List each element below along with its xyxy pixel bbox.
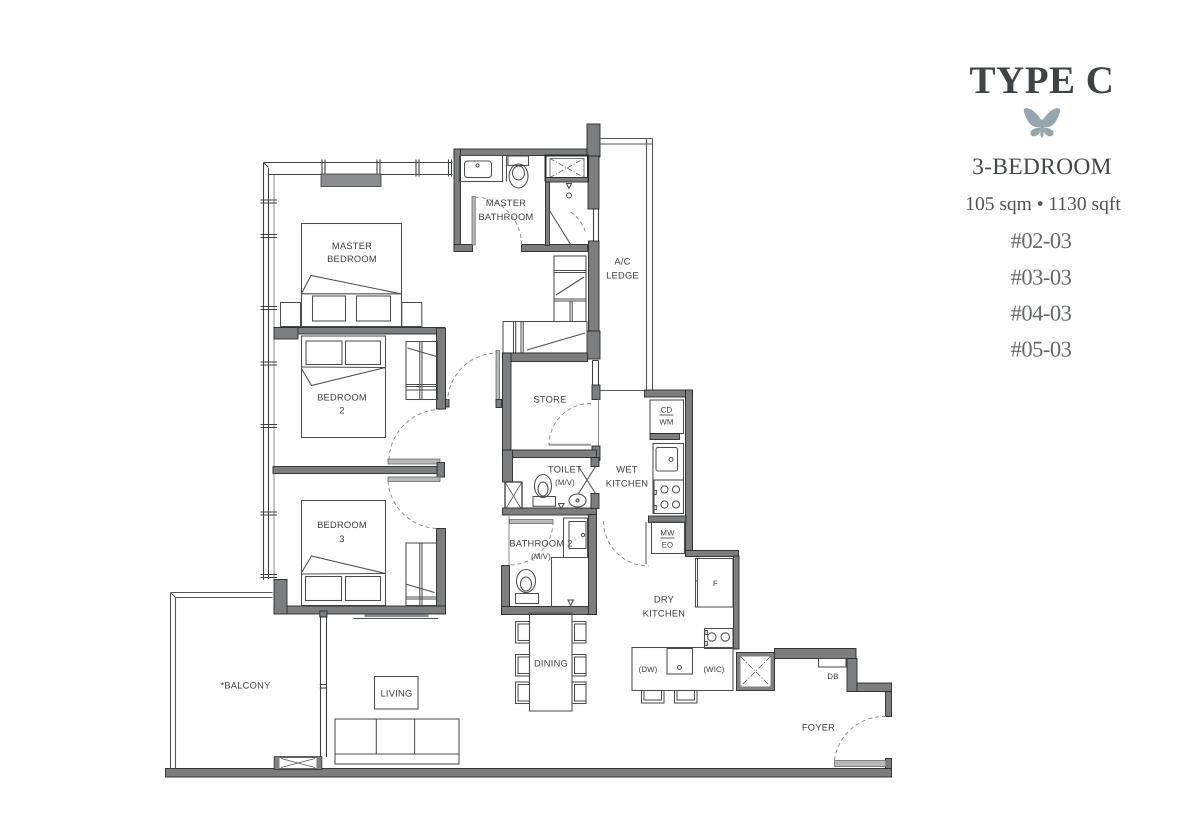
svg-text:#05-03: #05-03 [1011,337,1072,362]
svg-text:A/C: A/C [614,257,630,267]
svg-text:BEDROOM: BEDROOM [317,520,367,530]
svg-text:STORE: STORE [533,395,566,405]
svg-text:BEDROOM: BEDROOM [327,254,377,264]
svg-text:3-BEDROOM: 3-BEDROOM [972,154,1112,180]
svg-text:FOYER: FOYER [802,723,835,733]
svg-text:105 sqm • 1130 sqft: 105 sqm • 1130 sqft [965,194,1121,215]
svg-text:F: F [713,579,718,588]
svg-text:2: 2 [339,406,344,416]
svg-text:DB: DB [827,672,838,681]
svg-text:(M/V): (M/V) [555,478,575,487]
svg-text:3: 3 [339,534,344,544]
svg-text:BATHROOM: BATHROOM [478,212,533,222]
svg-text:TOILET: TOILET [548,465,582,475]
svg-text:DINING: DINING [534,659,568,669]
svg-text:MW: MW [660,529,675,538]
svg-text:KITCHEN: KITCHEN [643,609,686,619]
svg-text:DRY: DRY [654,595,674,605]
svg-text:#04-03: #04-03 [1011,301,1072,326]
svg-text:WET: WET [616,465,637,475]
svg-text:(M/V): (M/V) [531,552,551,561]
svg-text:MASTER: MASTER [486,198,526,208]
svg-text:WM: WM [659,418,673,427]
svg-text:EO: EO [662,541,674,550]
svg-text:MASTER: MASTER [332,241,372,251]
svg-text:BEDROOM: BEDROOM [317,393,367,403]
svg-text:CD: CD [661,406,673,415]
svg-text:#02-03: #02-03 [1011,228,1072,253]
svg-text:LEDGE: LEDGE [606,271,639,281]
svg-text:(WIC): (WIC) [703,665,724,674]
svg-text:(DW): (DW) [639,665,658,674]
svg-text:#03-03: #03-03 [1011,265,1072,290]
svg-text:TYPE C: TYPE C [970,59,1115,102]
svg-text:KITCHEN: KITCHEN [606,479,649,489]
svg-text:LIVING: LIVING [381,689,413,699]
svg-text:*BALCONY: *BALCONY [220,681,270,691]
